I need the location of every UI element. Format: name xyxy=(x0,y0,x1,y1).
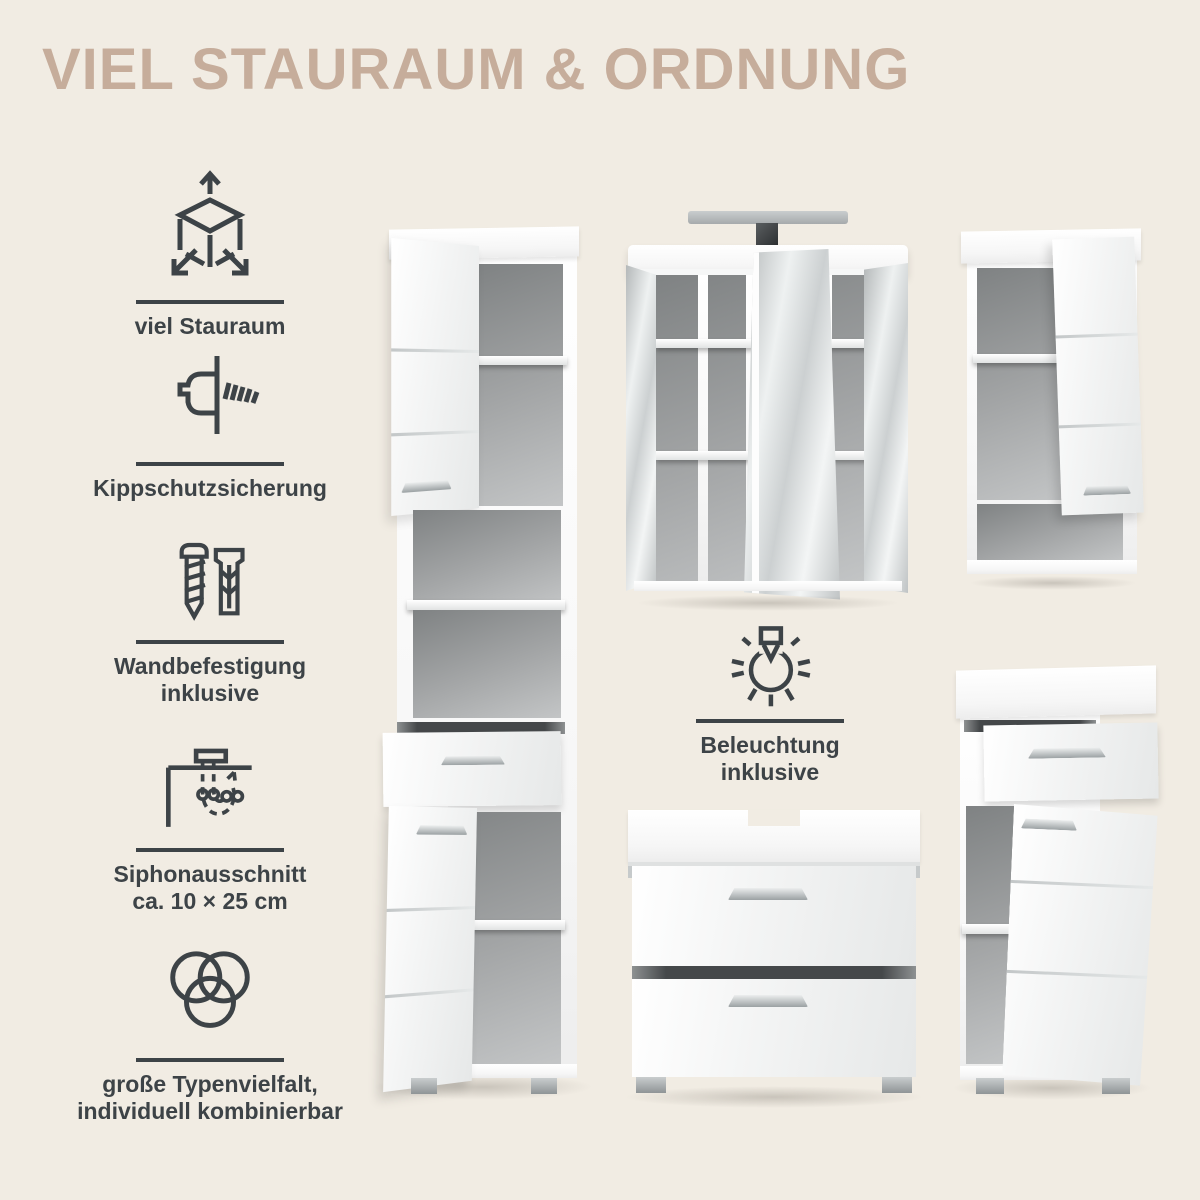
feature-label: Wandbefestigung inklusive xyxy=(60,653,360,707)
door-handle xyxy=(1083,485,1131,496)
tall-cabinet-open-shelf-mid xyxy=(413,510,561,606)
divider xyxy=(136,300,284,304)
tall-cabinet-drawer xyxy=(383,731,562,807)
cabinet-foot xyxy=(411,1078,437,1094)
door-seam xyxy=(1011,880,1155,889)
side-cabinet-top xyxy=(956,665,1156,718)
drawer-handle xyxy=(728,888,808,900)
feature-label: Siphonausschnitt ca. 10 × 25 cm xyxy=(60,861,360,915)
feature-storage: viel Stauraum xyxy=(60,170,360,340)
door-handle xyxy=(1021,818,1077,830)
door-handle xyxy=(401,480,451,493)
feature-type-variety: große Typenvielfalt, individuell kombini… xyxy=(60,946,360,1125)
infographic-canvas: VIEL STAURAUM & ORDNUNG viel Stauraum xyxy=(0,0,1200,1200)
feature-label: Kippschutzsicherung xyxy=(60,475,360,502)
divider xyxy=(696,719,844,723)
mirror-door-left xyxy=(626,265,656,591)
floor-shadow xyxy=(636,595,900,611)
interior-divider xyxy=(698,275,708,581)
cabinet-foot xyxy=(1102,1078,1130,1094)
door-handle xyxy=(416,825,467,835)
door-seam xyxy=(1059,423,1141,429)
wall-cabinet-bottom xyxy=(967,560,1137,574)
cube-dimensions-icon xyxy=(60,170,360,290)
floor-shadow xyxy=(624,1086,924,1108)
feature-label: Beleuchtung inklusive xyxy=(640,732,900,786)
under-sink-top-panel xyxy=(628,810,920,862)
wall-cabinet-door xyxy=(1052,237,1144,516)
tall-cabinet-lower-door xyxy=(383,806,477,1092)
mirror-door-edge xyxy=(752,249,759,603)
cabinet-foot xyxy=(882,1077,912,1093)
door-seam xyxy=(1056,333,1138,339)
tall-cabinet-open-shelves-upper xyxy=(475,264,563,506)
light-bar-mount xyxy=(756,223,778,247)
feature-lighting: Beleuchtung inklusive xyxy=(640,623,900,786)
mirror-door-right xyxy=(864,263,908,593)
cabinet-foot xyxy=(976,1078,1004,1094)
siphon-cutout-notch xyxy=(748,810,800,826)
feature-label: große Typenvielfalt, individuell kombini… xyxy=(60,1071,360,1125)
under-sink-drawer-top xyxy=(632,866,916,966)
feature-label: viel Stauraum xyxy=(60,313,360,340)
tall-cabinet-open-shelf-mid2 xyxy=(413,610,561,718)
tall-cabinet-upper-door xyxy=(391,238,479,516)
divider xyxy=(136,462,284,466)
door-seam xyxy=(1007,970,1151,979)
door-seam xyxy=(391,348,479,353)
cabinet-foot xyxy=(531,1078,557,1094)
tall-cabinet-image xyxy=(383,228,583,1100)
drawer-handle xyxy=(1028,747,1106,758)
divider xyxy=(136,848,284,852)
drawer-handle xyxy=(728,995,808,1007)
divider xyxy=(136,1058,284,1062)
door-seam xyxy=(387,906,475,912)
cabinet-foot xyxy=(636,1077,666,1093)
drawer-gap xyxy=(632,966,916,979)
anti-tip-screw-icon xyxy=(60,352,360,452)
floor-shadow xyxy=(969,576,1137,590)
mirror-cabinet-image xyxy=(626,203,910,607)
door-seam xyxy=(385,988,474,998)
under-sink-drawer-bottom xyxy=(632,979,916,1077)
siphon-cutout-icon xyxy=(60,738,360,838)
feature-anti-tip: Kippschutzsicherung xyxy=(60,352,360,502)
side-cabinet-image xyxy=(946,666,1162,1104)
under-sink-cabinet-image xyxy=(626,810,922,1102)
side-cabinet-drawer xyxy=(983,722,1158,801)
divider xyxy=(136,640,284,644)
feature-siphon-cutout: Siphonausschnitt ca. 10 × 25 cm xyxy=(60,738,360,915)
page-title: VIEL STAURAUM & ORDNUNG xyxy=(42,36,910,103)
drawer-handle xyxy=(441,756,505,766)
screw-and-dowel-icon xyxy=(60,540,360,630)
feature-wall-mounting: Wandbefestigung inklusive xyxy=(60,540,360,707)
wall-cabinet-image xyxy=(961,228,1145,586)
variety-circles-icon xyxy=(60,946,360,1048)
shelf xyxy=(471,356,567,365)
shelf xyxy=(407,600,565,610)
door-seam xyxy=(391,430,479,436)
mirror-door-center xyxy=(744,249,840,603)
light-bulb-icon xyxy=(640,623,900,709)
side-cabinet-door xyxy=(1002,804,1158,1086)
mirror-cabinet-bottom xyxy=(634,581,902,591)
